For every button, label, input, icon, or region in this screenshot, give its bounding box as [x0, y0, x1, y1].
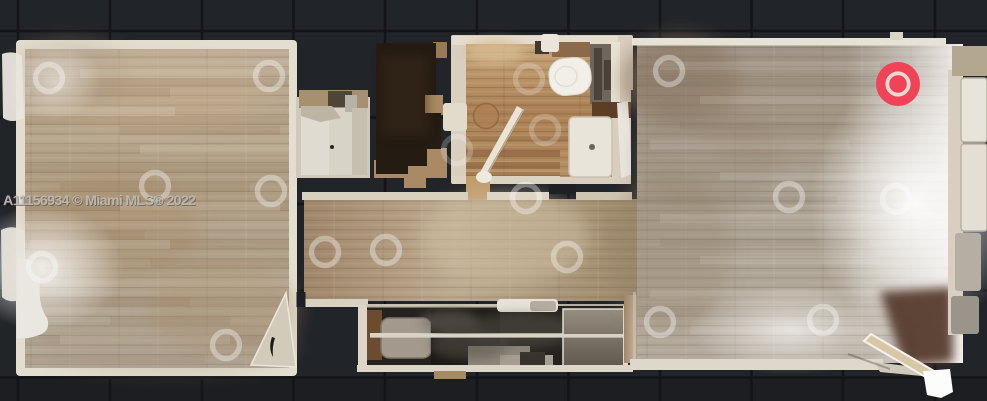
svg-text:A11156934 © Miami MLS® 2022: A11156934 © Miami MLS® 2022 — [3, 193, 196, 209]
